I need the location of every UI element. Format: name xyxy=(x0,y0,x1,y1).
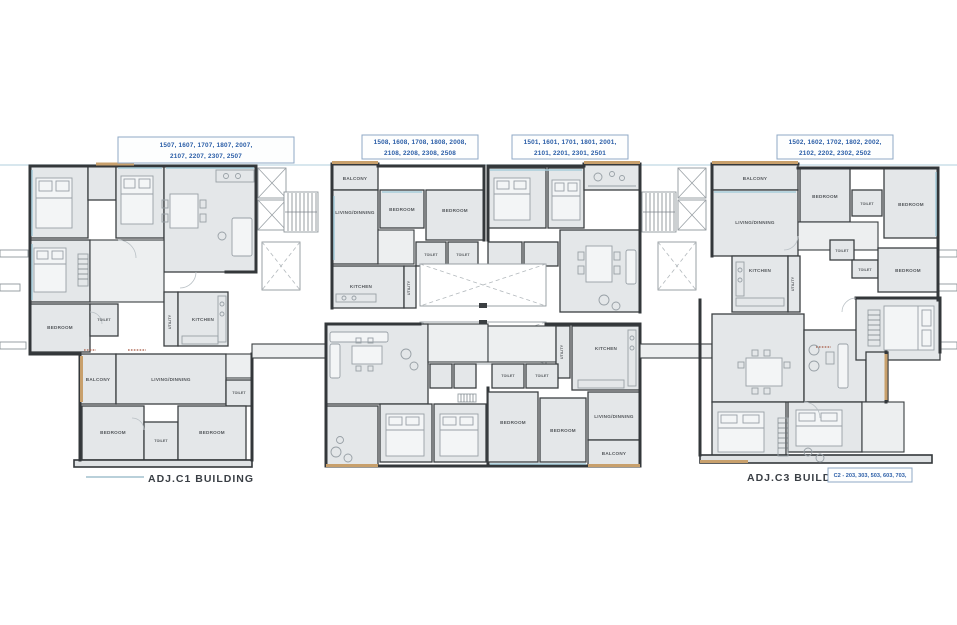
room-label-balcony: BALCONY xyxy=(743,176,767,181)
room-label-kitchen: KITCHEN xyxy=(192,317,215,322)
footer-labels: ADJ.C1 BUILDING ADJ.C3 BUILDING C2 - 203… xyxy=(86,468,912,485)
wardrobe xyxy=(458,394,476,402)
room-label-living-dining: LIVING/DINNING xyxy=(735,220,775,225)
room-label-bedroom: BEDROOM xyxy=(442,208,468,213)
room-label-kitchen: KITCHEN xyxy=(595,346,618,351)
room-label-balcony: BALCONY xyxy=(602,451,626,456)
room-label-utility: UTILITY xyxy=(560,344,564,359)
floor-plan-page: BEDROOM TOILET UTILITY KITCHEN BALCONY L… xyxy=(0,0,957,625)
unit-numbers-line: 2102, 2202, 2302, 2502 xyxy=(799,150,871,157)
room-label-toilet: TOILET xyxy=(154,439,168,443)
bed xyxy=(796,410,842,446)
unit-numbers-line: 1507, 1607, 1707, 1807, 2007, xyxy=(160,142,253,149)
room-label-living-dining: LIVING/DINNING xyxy=(594,414,634,419)
room-label-toilet: TOILET xyxy=(456,253,470,257)
room-label-balcony: BALCONY xyxy=(86,377,110,382)
bed xyxy=(386,414,424,456)
room-label-bedroom: BEDROOM xyxy=(550,428,576,433)
room-label-toilet: TOILET xyxy=(232,391,246,395)
room-label-bedroom: BEDROOM xyxy=(500,420,526,425)
bed xyxy=(121,176,153,224)
room-label-utility: UTILITY xyxy=(168,314,172,329)
room-label-bedroom: BEDROOM xyxy=(895,268,921,273)
bed xyxy=(552,180,580,220)
unit-number-boxes: 1507, 1607, 1707, 1807, 2007, 2107, 2207… xyxy=(118,135,893,163)
unit-numbers-line: 2108, 2208, 2308, 2508 xyxy=(384,150,456,157)
room-label-toilet: TOILET xyxy=(501,374,515,378)
room-label-utility: UTILITY xyxy=(407,280,411,295)
room-label-bedroom: BEDROOM xyxy=(100,430,126,435)
link-corridor xyxy=(252,344,326,358)
room-label-kitchen: KITCHEN xyxy=(350,284,373,289)
room-label-bedroom: BEDROOM xyxy=(812,194,838,199)
corridor-tick xyxy=(479,303,487,308)
unit-numbers-box-2: 1508, 1608, 1708, 1808, 2008, 2108, 2208… xyxy=(362,135,478,159)
bed xyxy=(494,178,530,220)
room-label-toilet: TOILET xyxy=(424,253,438,257)
floor-plan-drawing: BEDROOM TOILET UTILITY KITCHEN BALCONY L… xyxy=(0,0,957,625)
unit-numbers-line: 1508, 1608, 1708, 1808, 2008, xyxy=(374,139,467,146)
room-label-balcony: BALCONY xyxy=(343,176,367,181)
bed xyxy=(718,412,764,452)
room-label-toilet: TOILET xyxy=(858,268,872,272)
bed xyxy=(884,306,934,350)
unit-numbers-line: 2107, 2207, 2307, 2507 xyxy=(170,153,242,160)
room-label-toilet: TOILET xyxy=(835,249,849,253)
left-building-c1: BEDROOM TOILET UTILITY KITCHEN BALCONY L… xyxy=(30,164,256,467)
room-label-utility: UTILITY xyxy=(791,276,795,291)
unit-numbers-line: 2101, 2201, 2301, 2501 xyxy=(534,150,606,157)
room-label-living-dining: LIVING/DINNING xyxy=(151,377,191,382)
bed xyxy=(440,414,478,456)
units-note-text: C2 - 203, 303, 503, 603, 703, xyxy=(834,473,907,479)
unit-numbers-box-1: 1507, 1607, 1707, 1807, 2007, 2107, 2207… xyxy=(118,137,294,163)
room-label-bedroom: BEDROOM xyxy=(389,207,415,212)
room-label-bedroom: BEDROOM xyxy=(47,325,73,330)
room-label-toilet: TOILET xyxy=(97,318,111,322)
unit-numbers-line: 1501, 1601, 1701, 1801, 2001, xyxy=(524,139,617,146)
unit-numbers-line: 1502, 1602, 1702, 1802, 2002, xyxy=(789,139,882,146)
room-label-toilet: TOILET xyxy=(860,202,874,206)
bed xyxy=(34,248,66,292)
room-label-kitchen: KITCHEN xyxy=(749,268,772,273)
staircase xyxy=(284,192,318,232)
unit-numbers-box-3: 1501, 1601, 1701, 1801, 2001, 2101, 2201… xyxy=(512,135,628,159)
unit-numbers-box-4: 1502, 1602, 1702, 1802, 2002, 2102, 2202… xyxy=(777,135,893,159)
room-label-bedroom: BEDROOM xyxy=(898,202,924,207)
bed xyxy=(36,178,72,228)
room-label-living-dining: LIVING/DINNING xyxy=(335,210,375,215)
staircase xyxy=(642,192,676,232)
room-label-bedroom: BEDROOM xyxy=(199,430,225,435)
right-building-c3: BALCONY LIVING/DINNING BEDROOM TOILET BE… xyxy=(700,163,940,464)
center-block: BALCONY LIVING/DINNING BEDROOM BEDROOM T… xyxy=(326,163,640,467)
room-label-toilet: TOILET xyxy=(535,374,549,378)
units-note-box: C2 - 203, 303, 503, 603, 703, xyxy=(828,468,912,482)
left-building-base xyxy=(74,460,252,467)
building-label-left: ADJ.C1 BUILDING xyxy=(148,473,254,485)
